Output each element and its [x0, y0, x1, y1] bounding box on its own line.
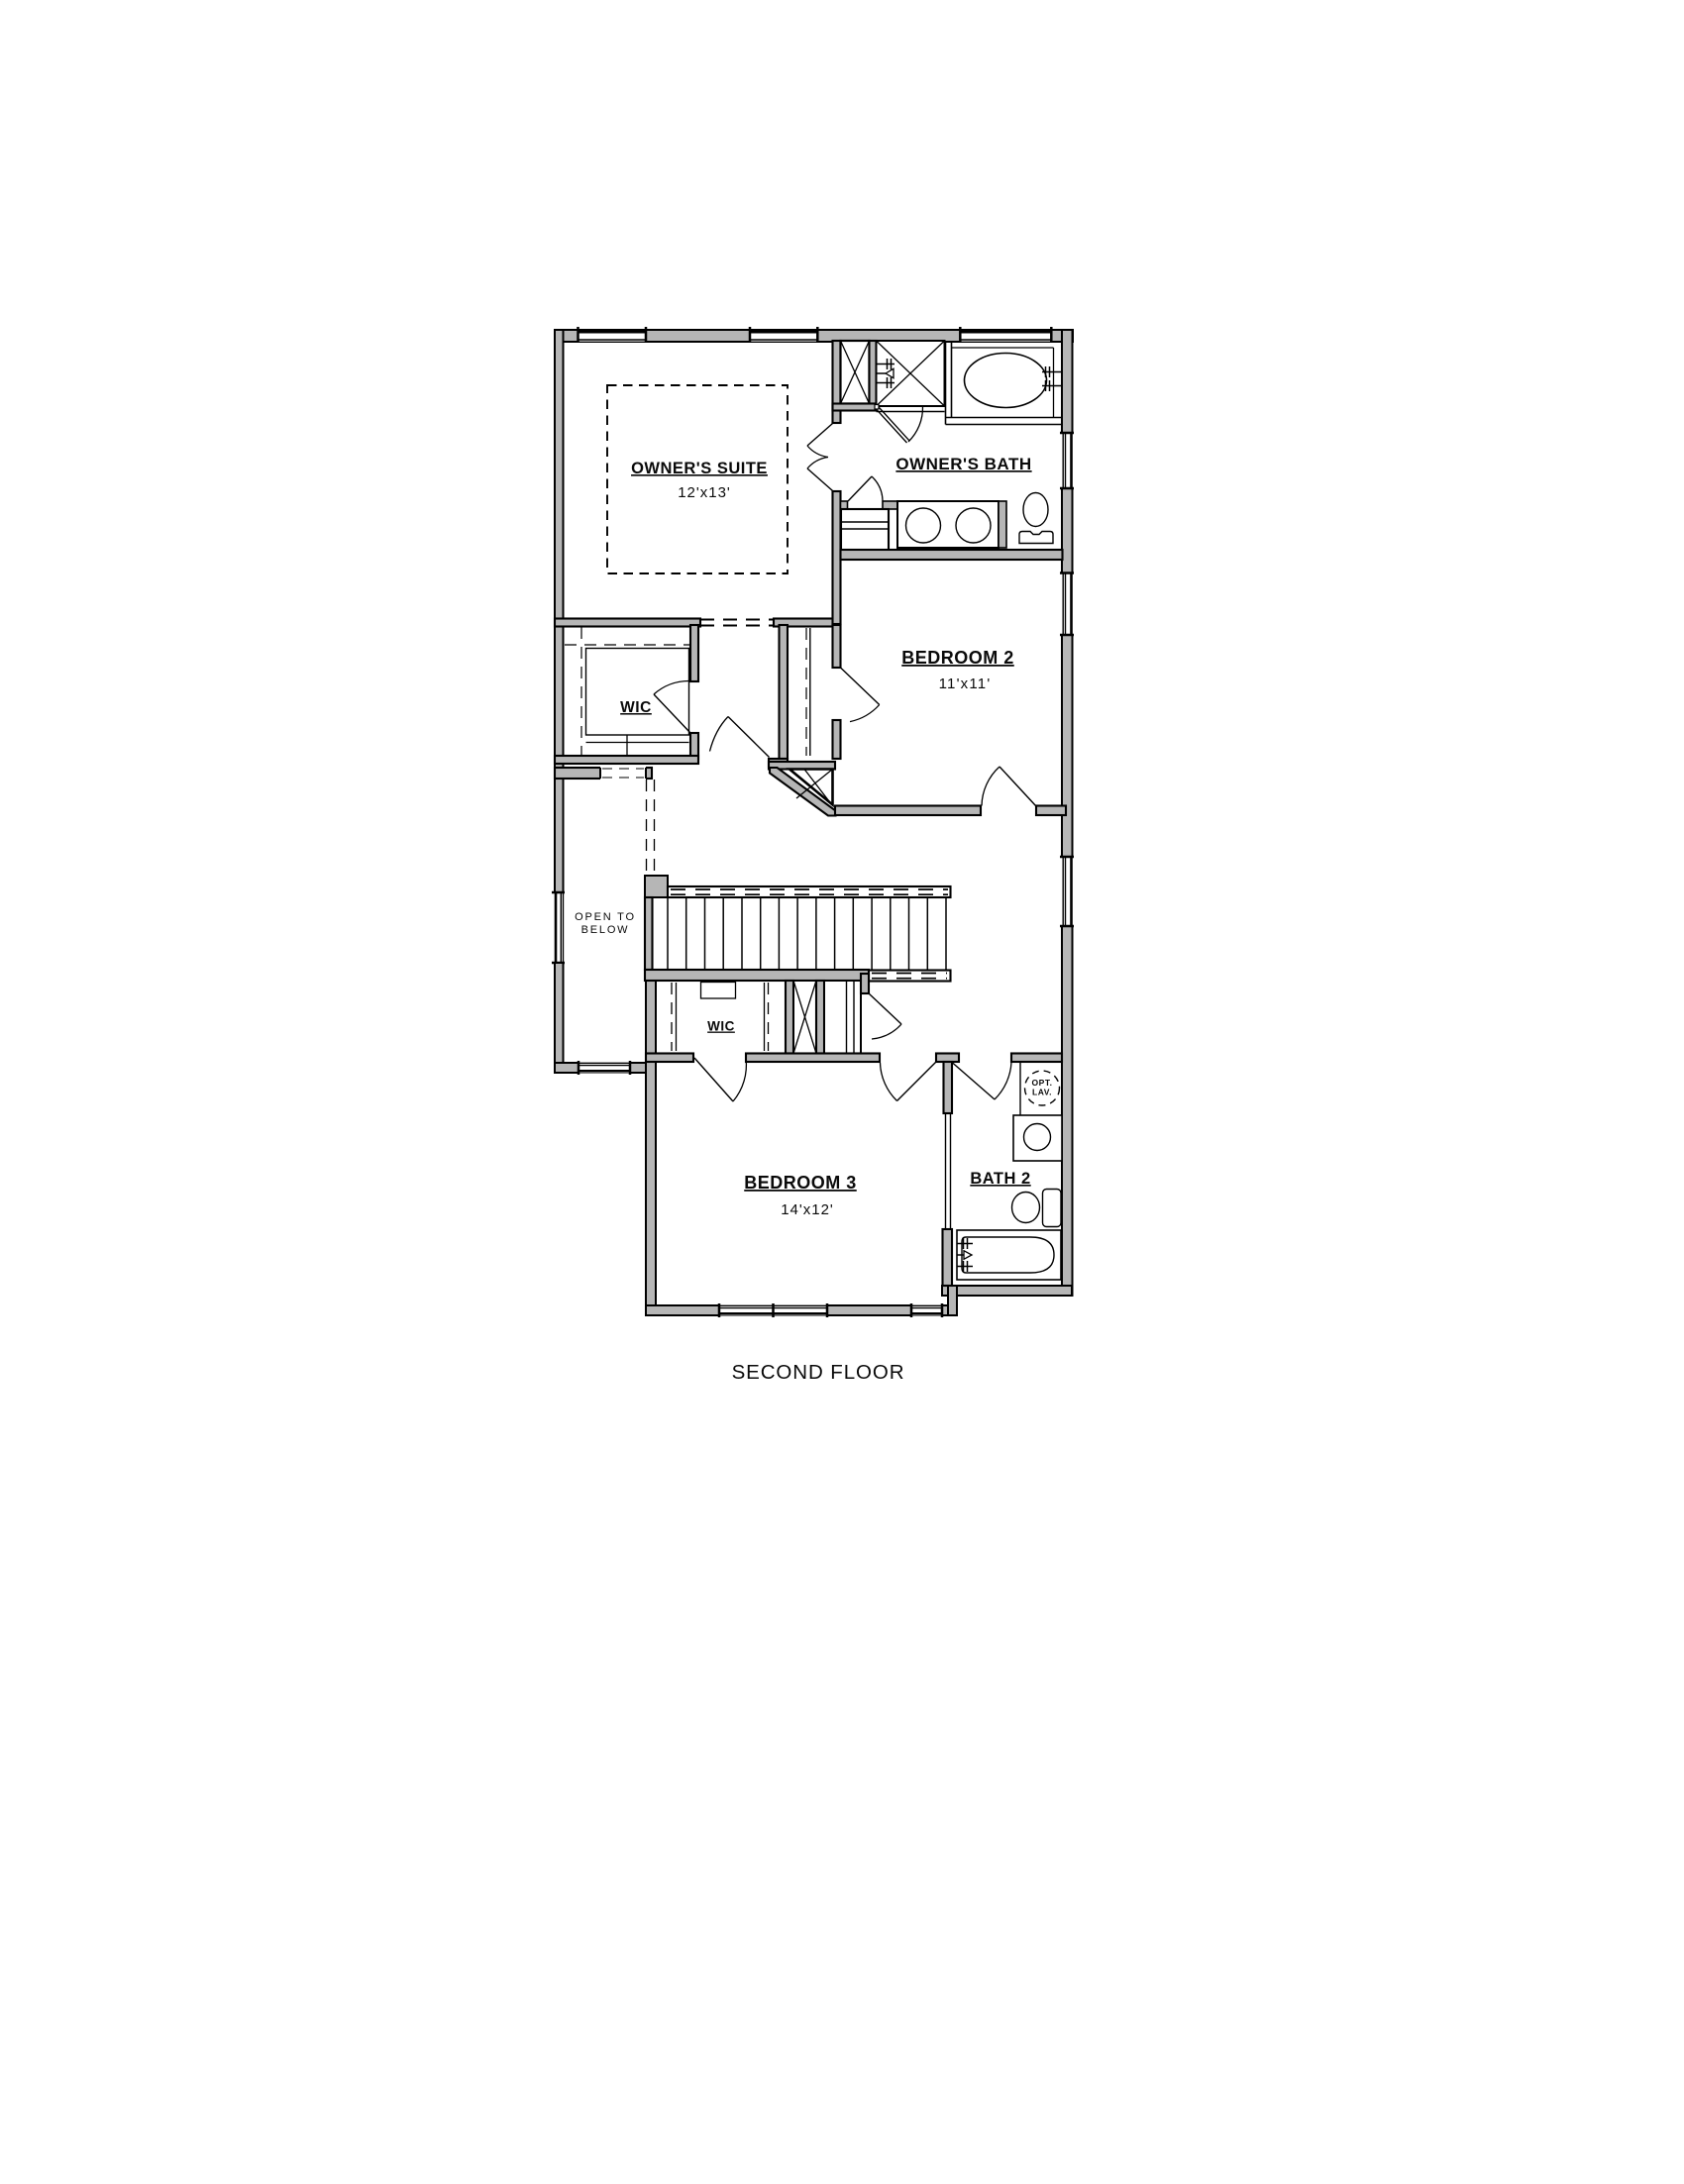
svg-text:SECOND FLOOR: SECOND FLOOR — [732, 1361, 905, 1384]
svg-text:BELOW: BELOW — [581, 924, 630, 936]
svg-text:14'x12': 14'x12' — [781, 1201, 834, 1218]
svg-text:BEDROOM 3: BEDROOM 3 — [744, 1173, 857, 1193]
svg-text:OWNER'S SUITE: OWNER'S SUITE — [631, 460, 768, 477]
svg-text:WIC: WIC — [620, 699, 652, 716]
svg-text:OPT.: OPT. — [1032, 1078, 1053, 1088]
svg-text:11'x11': 11'x11' — [939, 676, 992, 692]
svg-text:LAV.: LAV. — [1032, 1088, 1052, 1097]
svg-text:BATH 2: BATH 2 — [970, 1170, 1030, 1188]
svg-text:WIC: WIC — [707, 1019, 735, 1034]
svg-text:BEDROOM 2: BEDROOM 2 — [901, 648, 1014, 668]
svg-text:OWNER'S BATH: OWNER'S BATH — [895, 455, 1031, 473]
svg-text:12'x13': 12'x13' — [678, 484, 731, 501]
svg-text:OPEN TO: OPEN TO — [575, 911, 636, 923]
